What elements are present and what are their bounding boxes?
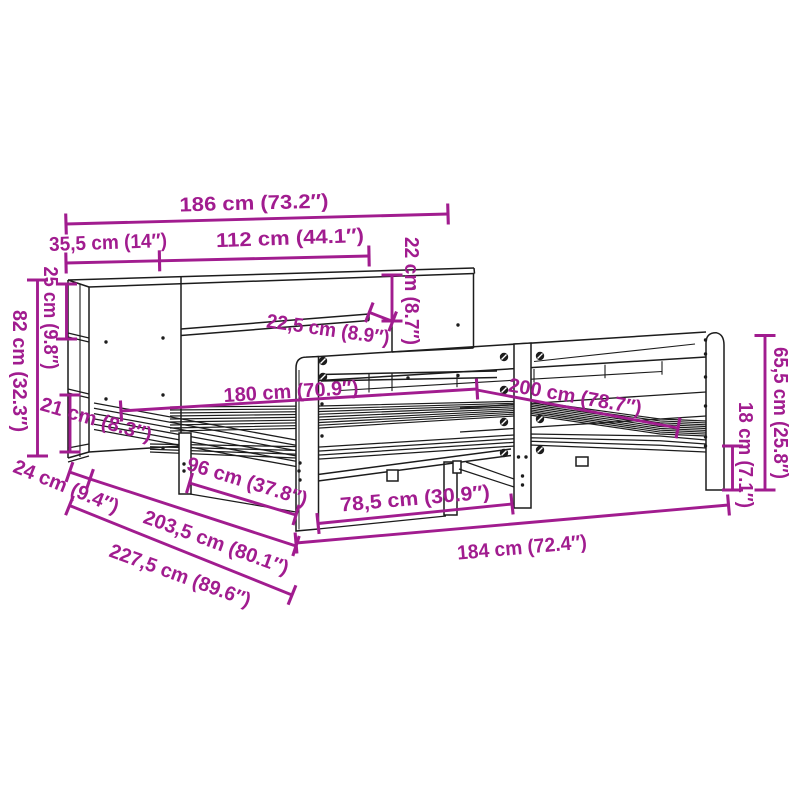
svg-text:82 cm (32.3″): 82 cm (32.3″) [8,310,30,432]
svg-text:35,5 cm (14″): 35,5 cm (14″) [49,230,168,256]
svg-text:18 cm (7.1″): 18 cm (7.1″) [734,402,756,508]
svg-text:186 cm (73.2″): 186 cm (73.2″) [179,191,329,217]
svg-text:22 cm (8.7″): 22 cm (8.7″) [400,237,422,345]
svg-text:25 cm (9.8″): 25 cm (9.8″) [39,267,61,370]
svg-text:65,5 cm (25.8″): 65,5 cm (25.8″) [769,347,791,479]
